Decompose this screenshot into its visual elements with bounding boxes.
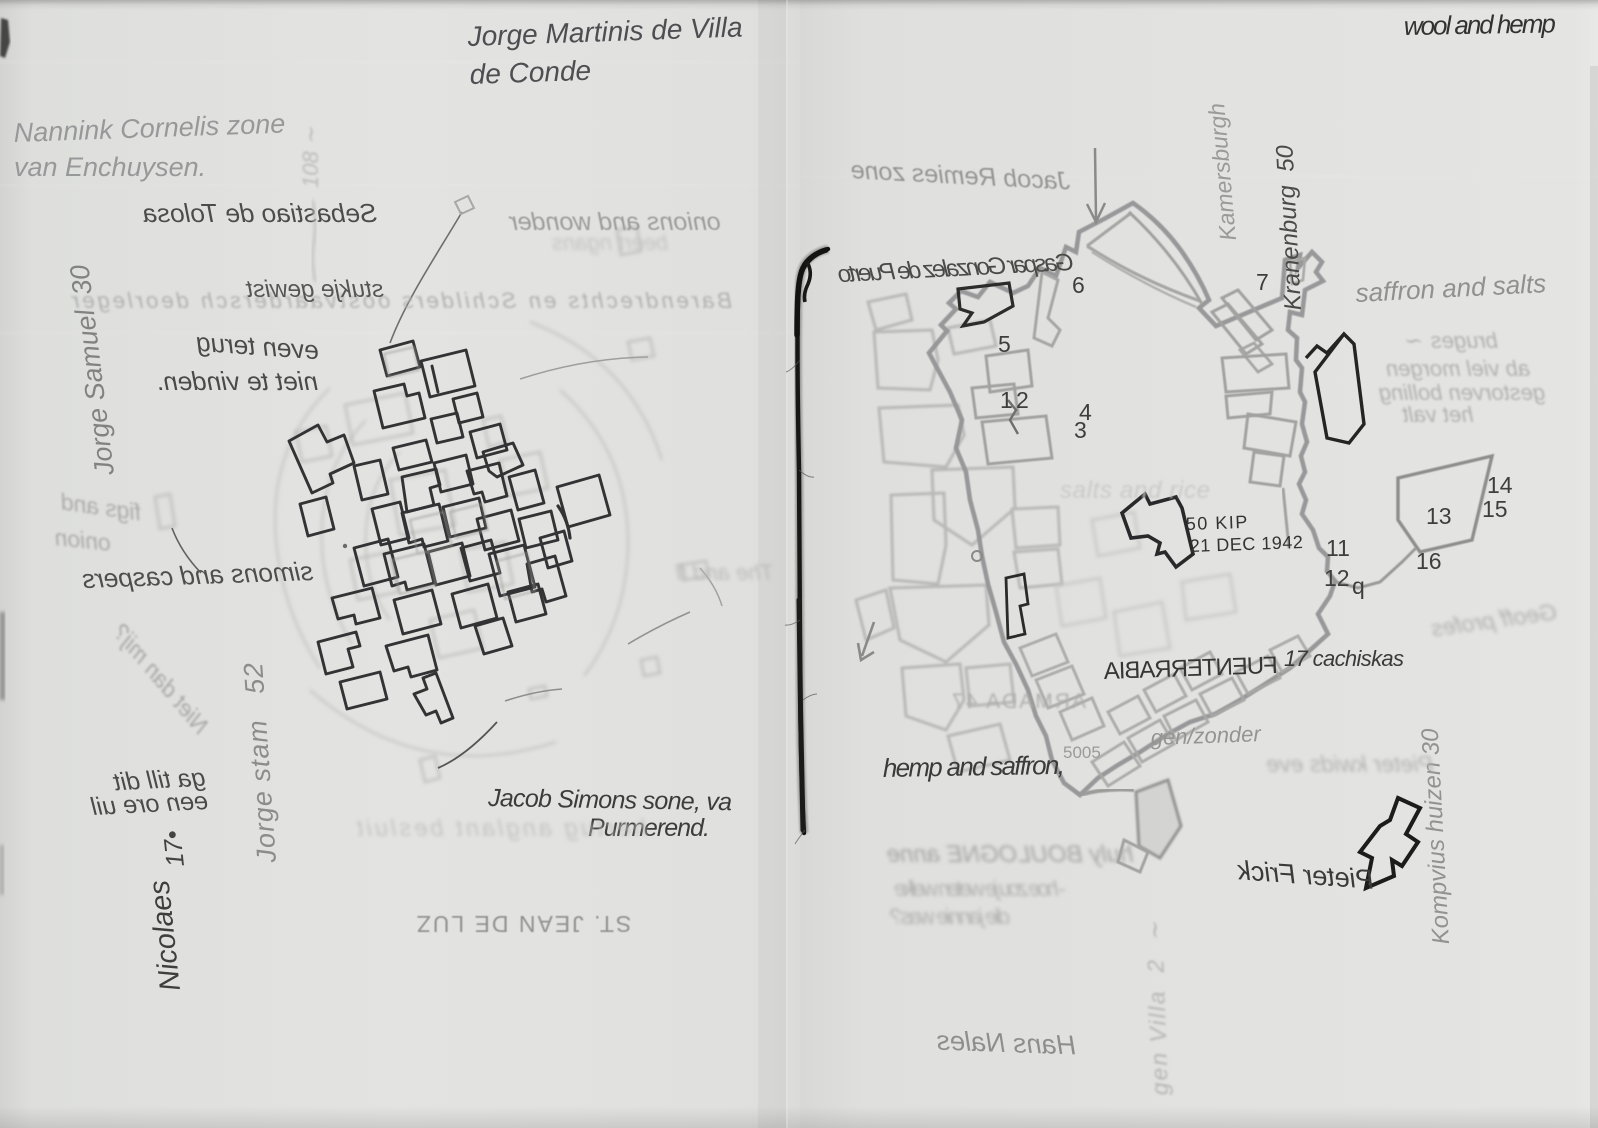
svg-text:12: 12: [1324, 565, 1350, 591]
svg-text:15: 15: [1482, 496, 1508, 522]
svg-text:bruges ∼: bruges ∼: [1406, 328, 1498, 353]
svg-text:17 cachiskas: 17 cachiskas: [1284, 646, 1404, 671]
svg-text:ARMADA 47: ARMADA 47: [950, 690, 1086, 713]
svg-text:ST. JEAN DE LUZ: ST. JEAN DE LUZ: [415, 911, 632, 937]
svg-text:14: 14: [1487, 472, 1513, 498]
svg-text:5: 5: [998, 331, 1011, 357]
svg-text:Purmerend.: Purmerend.: [588, 814, 710, 842]
svg-text:108 ∼: 108 ∼: [298, 126, 323, 188]
svg-text:21 DEC 1942: 21 DEC 1942: [1189, 532, 1303, 556]
svg-text:van Enchuysen.: van Enchuysen.: [14, 152, 206, 182]
svg-text:wool and hemp: wool and hemp: [1404, 8, 1557, 41]
svg-text:ab viel morgen: ab viel morgen: [1386, 356, 1530, 381]
svg-text:17•: 17•: [158, 829, 190, 868]
svg-text:gen/zonder: gen/zonder: [1150, 721, 1262, 750]
svg-text:de Conde: de Conde: [469, 55, 591, 90]
svg-text:Pieter kwids eve: Pieter kwids eve: [1266, 751, 1433, 777]
svg-text:salts and rice: salts and rice: [1060, 477, 1210, 504]
svg-text:5005: 5005: [1063, 743, 1101, 762]
svg-text:beert ngans: beert ngans: [552, 230, 668, 255]
svg-text:die jannie was?: die jannie was?: [889, 904, 1010, 929]
svg-text:16: 16: [1416, 548, 1442, 574]
svg-text:Jacob Simons sone, va: Jacob Simons sone, va: [487, 784, 733, 816]
svg-text:hertug anglant besluit: hertug anglant besluit: [356, 815, 647, 842]
svg-text:niet te vinden.: niet te vinden.: [156, 366, 318, 396]
svg-text:2: 2: [1016, 387, 1029, 413]
svg-text:3: 3: [1074, 417, 1087, 443]
svg-text:11: 11: [1326, 535, 1350, 561]
svg-text:hemp and saffron,: hemp and saffron,: [883, 750, 1065, 783]
svg-text:Sebastiao de Tolosa: Sebastiao de Tolosa: [143, 198, 378, 228]
svg-text:7: 7: [1256, 269, 1269, 295]
svg-text:huly BOULOGNE anne: huly BOULOGNE anne: [887, 841, 1134, 868]
svg-text:1: 1: [1000, 387, 1013, 413]
svg-text:- hoe zou je weten welke: - hoe zou je weten welke: [894, 876, 1066, 901]
svg-text:Hans Nales: Hans Nales: [936, 1026, 1077, 1061]
svg-text:het valt: het valt: [1402, 402, 1474, 427]
svg-text:50 KIP: 50 KIP: [1185, 512, 1249, 534]
svg-text:The and fl: The and fl: [675, 560, 774, 585]
svg-text:6: 6: [1072, 272, 1085, 298]
svg-text:q: q: [1352, 573, 1365, 599]
svg-text:13: 13: [1426, 503, 1452, 529]
